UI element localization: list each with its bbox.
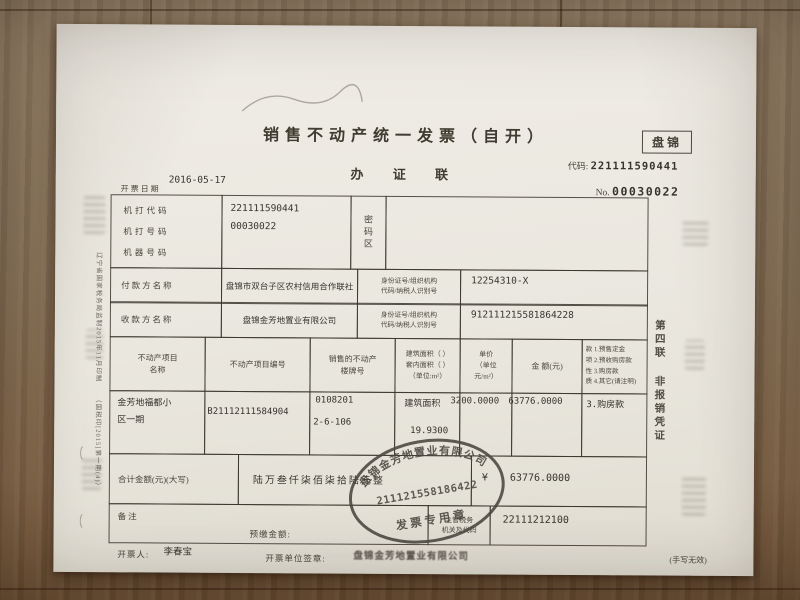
machine-value-cell: 221111590441 00030022 [221, 195, 351, 270]
cell-project-number [204, 391, 310, 456]
payer-id-label-l2: 代码/纳税人识别号 [381, 287, 437, 298]
payee-id-label-l2: 代码/纳税人识别号 [381, 321, 437, 332]
wood-seam [150, 0, 152, 27]
ink-smudge [685, 340, 705, 370]
unit-price-value: 3200.0000 [450, 396, 499, 406]
header-payment-nature: 款 1.预售定金 项 2.预收购房款 性 3.购房款 质 4.其它(请注明) [581, 339, 647, 394]
header-unit-price-l1: 单价 [479, 350, 493, 361]
machine-number-value: 00030022 [230, 221, 276, 232]
wood-seam [0, 9, 800, 11]
invoice-paper: 销售不动产统一发票（自开） 盘锦 代码: 221111590441 办 证 联 … [53, 24, 756, 576]
building-no-value-l1: 0108201 [315, 395, 353, 405]
payee-id-label-cell: 身份证号/组织机构 代码/纳税人识别号 [357, 303, 461, 340]
header-area: 建筑面积（ ） 套内面积（ ） （单位:m²） [394, 338, 460, 393]
ink-smudge [86, 329, 104, 359]
header-building-no: 销售的不动产 楼牌号 [309, 337, 395, 393]
machine-code-label: 机打代码 [124, 204, 170, 216]
ink-smudge [682, 476, 706, 516]
payer-label-cell: 付款方名称 [110, 267, 222, 304]
payment-nature-char-3: 性 [586, 368, 593, 375]
payment-option-1-text: 1.预售定金 [594, 347, 625, 354]
payer-name: 盘锦市双台子区农村信用合作联社 [226, 280, 354, 293]
payee-id-label-l1: 身份证号/组织机构 [381, 311, 437, 322]
payer-id-label-cell: 身份证号/组织机构 代码/纳税人识别号 [357, 269, 461, 306]
invoice-code-line: 代码: 221111590441 [568, 159, 679, 173]
pen-scribble-artifact [236, 77, 366, 120]
payer-id-value-cell: 12254310-X [460, 269, 648, 306]
payment-option-4-text: 4.其它(请注明) [594, 378, 636, 385]
header-project-name-l2: 名称 [150, 364, 166, 376]
copy-number-vertical: 第四联 [652, 320, 667, 361]
payee-id-value: 912111215581864228 [471, 309, 574, 321]
crease-mark [80, 444, 92, 462]
machine-id-label: 机器号码 [123, 246, 169, 258]
payee-name-cell: 盘锦金芳地置业有限公司 [221, 302, 358, 339]
header-unit-price-l2: （单位 [476, 361, 497, 372]
header-project-name-l1: 不动产项目 [138, 352, 178, 364]
payment-option-4-char: 质 [585, 378, 592, 385]
header-building-no-l1: 销售的不动产 [329, 353, 377, 365]
payee-label: 收款方名称 [121, 313, 174, 325]
payment-option-3: 性 3.购房款 [586, 367, 647, 378]
issue-date-value: 2016-05-17 [169, 175, 226, 186]
project-name-value-l2: 区一期 [117, 412, 144, 425]
header-area-l1: 建筑面积（ ） [406, 349, 450, 360]
header-area-l2: 套内面积（ ） [406, 360, 450, 371]
area-type-value: 建筑面积 [404, 396, 440, 409]
wood-seam [0, 588, 800, 590]
wood-seam [560, 0, 562, 27]
remarks-label: 备注 [118, 510, 139, 522]
header-project-number: 不动产项目编号 [204, 337, 310, 393]
payment-nature-char-2: 项 [586, 357, 593, 364]
payer-id-value: 12254310-X [471, 275, 528, 286]
header-amount-label: 金 额(元) [531, 360, 562, 372]
issuer-label: 开票人: [117, 548, 149, 560]
building-no-value-l2: 2-6-106 [313, 417, 351, 427]
header-project-name: 不动产项目 名称 [109, 336, 205, 392]
machine-number-label: 机打号码 [123, 225, 169, 237]
stamp-caption: 发票专用章 [394, 507, 469, 533]
ink-smudge [83, 196, 105, 234]
invoice-title: 销售不动产统一发票（自开） [176, 121, 636, 148]
issue-date-label: 开票日期 [121, 183, 161, 194]
code-label: 代码: [568, 161, 589, 171]
issuer-name: 李春宝 [163, 544, 192, 558]
unit-seal-print: 盘锦金芳地置业有限公司 [353, 548, 469, 563]
payer-name-cell: 盘锦市双台子区农村信用合作联社 [221, 268, 358, 305]
project-name-value-l1: 金芳地福都小 [117, 395, 171, 408]
total-label-cell: 合计金额(元)(大写) [109, 453, 239, 505]
handwritten-invalid-note: (手写无效) [669, 555, 706, 566]
payment-option-2: 项 2.预收购房款 [586, 356, 647, 367]
crease-mark [80, 512, 92, 530]
header-building-no-l2: 楼牌号 [341, 365, 365, 377]
stamp-number: 211121558186422 [376, 479, 479, 508]
header-amount: 金 额(元) [511, 339, 582, 394]
header-unit-price: 单价 （单位 元/m²） [459, 338, 512, 393]
header-unit-price-l3: 元/m²） [474, 371, 498, 382]
payment-option-3-text: 3.购房款 [594, 368, 619, 375]
total-label: 合计金额(元)(大写) [118, 473, 189, 485]
password-area-label-cell: 密码区 [350, 196, 386, 270]
payment-nature-char-1: 款 [586, 347, 593, 354]
payment-nature-value: 3.购房款 [586, 397, 624, 410]
payee-id-value-cell: 912111215581864228 [460, 303, 648, 340]
payment-option-2-text: 2.预收购房款 [594, 357, 632, 364]
header-area-l3: （单位:m²） [409, 371, 447, 382]
copy-name: 办 证 联 [246, 163, 566, 184]
payee-name: 盘锦金芳地置业有限公司 [243, 314, 337, 327]
prepaid-amount-label: 预缴金额: [250, 528, 291, 540]
non-reimbursement-vertical: 非报销凭证 [651, 376, 666, 444]
machine-code-value: 221111590441 [231, 203, 300, 214]
machine-label-cell: 机打代码 机打号码 机器号码 [110, 194, 222, 269]
amount-value: 63776.0000 [508, 397, 562, 407]
payer-label: 付款方名称 [121, 279, 174, 291]
ink-smudge [682, 218, 708, 246]
region-label: 盘锦 [652, 136, 682, 150]
region-box: 盘锦 [642, 130, 692, 153]
payee-label-cell: 收款方名称 [110, 301, 222, 338]
password-area-label: 密码区 [362, 215, 375, 251]
password-area-cell [385, 196, 648, 272]
project-number-value: B21112111584904 [207, 407, 288, 417]
payer-id-label-l1: 身份证号/组织机构 [381, 277, 437, 288]
code-value: 221111590441 [591, 160, 679, 173]
photo-background: 销售不动产统一发票（自开） 盘锦 代码: 221111590441 办 证 联 … [0, 0, 800, 600]
header-project-number-label: 不动产项目编号 [230, 358, 286, 370]
unit-seal-label: 开票单位签章: [265, 552, 325, 564]
left-margin-print-info-1: 辽宁省国家税务局监制2015年11月印制 [94, 252, 105, 382]
payment-option-4: 质 4.其它(请注明) [585, 377, 646, 388]
payment-option-1: 款 1.预售定金 [586, 346, 647, 357]
total-amount-figure: 63776.0000 [510, 473, 570, 484]
